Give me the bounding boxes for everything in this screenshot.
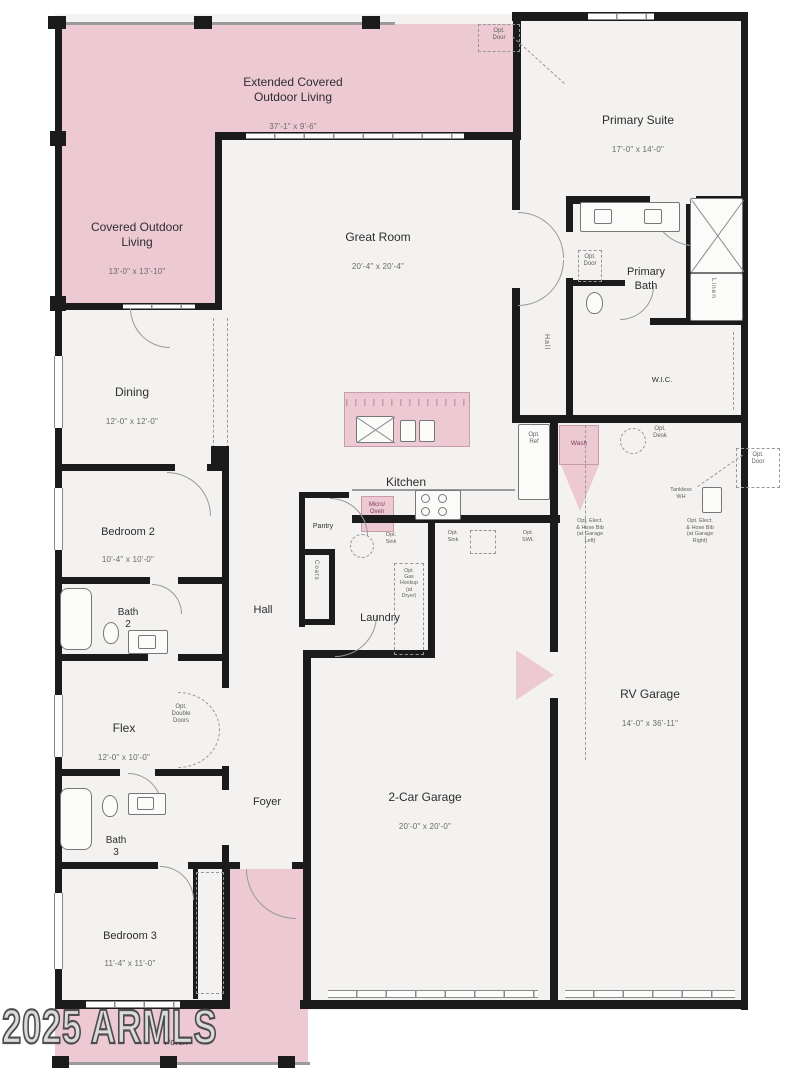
bedroom3-closet	[196, 872, 224, 994]
room-label-foyer: Foyer	[253, 782, 281, 823]
wall	[512, 415, 748, 423]
room-name: Extended Covered Outdoor Living	[243, 75, 342, 105]
room-dims: 10'-4" x 10'-0"	[101, 555, 155, 565]
room-name: Bedroom 2	[101, 526, 155, 540]
flex-doors-opening	[222, 688, 229, 766]
opt-swl-label: Opt. SWL	[522, 530, 534, 543]
wall	[550, 415, 558, 652]
wall	[303, 650, 311, 1008]
opt-door-label: Opt. Door	[583, 254, 596, 268]
toilet	[586, 292, 603, 314]
tankless-water-heater	[702, 487, 722, 513]
bedroom3-side-window	[54, 893, 63, 969]
hose-bib-left-label: Opt. Elect. & Hose Bib (at Garage Left)	[576, 518, 604, 544]
room-name: W.I.C.	[652, 375, 672, 384]
post	[52, 1056, 69, 1068]
room-label-primary-bath: Primary Bath	[627, 252, 665, 307]
opt-ref-label: Opt. Ref	[528, 432, 539, 446]
room-label-dining: Dining 12'-0" x 12'-0"	[106, 370, 158, 442]
room-label-laundry: Laundry	[360, 598, 400, 639]
room-label-covered-outdoor: Covered Outdoor Living 13'-0" x 13'-10"	[91, 205, 183, 292]
bathtub	[60, 788, 92, 850]
room-dims: 14'-0" x 36'-11"	[620, 719, 680, 729]
burner	[438, 507, 447, 516]
front-door-opening	[240, 862, 292, 869]
room-label-hall-suite: Hall	[543, 334, 550, 350]
room-name: Pantry	[313, 523, 333, 532]
room-label-great-room: Great Room 20'-4" x 20'-4"	[345, 215, 410, 287]
bathtub	[60, 588, 92, 650]
bedroom2-window	[54, 488, 63, 550]
room-label-primary-suite: Primary Suite 17'-0" x 14'-0"	[602, 98, 674, 170]
rv-clearance-line	[585, 425, 586, 760]
opt-sink-kitchen-label: Opt. Sink	[386, 532, 397, 545]
opt-gas-dryer-label: Opt. Gas Hookup (at Dryer)	[400, 568, 418, 599]
garage-door-2car	[328, 990, 538, 998]
wall	[299, 492, 349, 498]
room-label-bath3: Bath 3	[106, 822, 127, 872]
room-dims: 12'-0" x 12'-0"	[106, 417, 158, 427]
sink	[594, 209, 612, 224]
island-counter-ticks	[346, 399, 468, 406]
opt-double-doors-label: Opt. Double Doors	[171, 704, 190, 726]
garage-door-rv	[565, 990, 735, 998]
room-label-bath2: Bath 2	[118, 594, 139, 644]
flex-window	[54, 695, 63, 757]
room-name: RV Garage	[620, 687, 680, 702]
wall	[741, 12, 748, 1010]
dishwasher	[419, 420, 435, 442]
floor-plan: Extended Covered Outdoor Living 37'-1" x…	[0, 0, 800, 1082]
room-name: 2-Car Garage	[388, 790, 461, 805]
room-name: Flex	[98, 721, 150, 736]
burner	[438, 494, 447, 503]
opt-wall-line	[227, 318, 228, 448]
room-label-linen: Linen	[710, 278, 717, 299]
room-label-pantry: Pantry	[313, 514, 333, 540]
wall	[300, 1000, 748, 1009]
opt-desk-circle	[620, 428, 646, 454]
wall	[566, 196, 573, 423]
micro-oven-label: Micro/ Oven	[369, 502, 385, 516]
room-dims: 20'-0" x 20'-0"	[388, 822, 461, 832]
wall	[215, 132, 222, 310]
tankless-wh-label: Tankless WH	[670, 487, 691, 500]
room-dims: 12'-0" x 10'-0"	[98, 753, 150, 763]
room-name: Bath 3	[106, 835, 127, 860]
room-dims: 17'-0" x 14'-0"	[602, 145, 674, 155]
sink	[644, 209, 662, 224]
wic-rod-line	[733, 332, 734, 410]
room-label-garage: 2-Car Garage 20'-0" x 20'-0"	[388, 775, 461, 847]
wall	[512, 288, 520, 415]
wall	[211, 446, 229, 464]
post	[50, 131, 66, 146]
post	[362, 16, 380, 29]
room-name: Great Room	[345, 230, 410, 245]
dishwasher	[400, 420, 416, 442]
room-name: Kitchen	[386, 475, 426, 490]
room-name: Covered Outdoor Living	[91, 220, 183, 250]
room-label-coats: Coats	[313, 560, 319, 581]
opt-door-label: Opt. Door	[751, 452, 764, 466]
room-name: Foyer	[253, 796, 281, 810]
room-label-flex: Flex 12'-0" x 10'-0"	[98, 706, 150, 778]
post	[278, 1056, 295, 1068]
room-label-bedroom2: Bedroom 2 10'-4" x 10'-0"	[101, 512, 155, 579]
room-dims: 11'-4" x 11'-0"	[103, 959, 157, 969]
room-name: Primary Suite	[602, 113, 674, 128]
room-label-wic: W.I.C.	[652, 366, 672, 394]
room-name: Laundry	[360, 612, 400, 626]
sink	[138, 635, 156, 649]
wall	[329, 549, 335, 625]
room-name: Dining	[106, 385, 158, 400]
room-label-hall: Hall	[254, 590, 273, 631]
opt-door-label: Opt. Door	[492, 28, 505, 42]
opt-wall-line	[213, 318, 214, 448]
wall	[428, 515, 435, 658]
burner	[421, 507, 430, 516]
wall	[512, 132, 520, 210]
opt-sink-garage-label: Opt. Sink	[448, 530, 459, 543]
door-opening	[222, 790, 229, 845]
wall	[550, 698, 558, 1006]
wall	[55, 862, 222, 869]
primary-suite-window	[588, 13, 654, 20]
toilet	[102, 795, 118, 817]
room-label-rv-garage: RV Garage 14'-0" x 36'-11"	[620, 672, 680, 744]
wall	[299, 492, 305, 627]
room-name: Primary Bath	[627, 266, 665, 294]
armls-watermark: 2025 ARMLS	[2, 1000, 217, 1055]
door-opening	[566, 232, 573, 278]
room-label-kitchen: Kitchen	[386, 460, 426, 505]
room-name: Bath 2	[118, 607, 139, 632]
room-name: Bedroom 3	[103, 930, 157, 944]
room-name: Hall	[254, 604, 273, 618]
room-dims: 13'-0" x 13'-10"	[91, 267, 183, 277]
wall	[55, 654, 222, 661]
toilet	[103, 622, 119, 644]
hose-bib-right-label: Opt. Elect. & Hose Bib (at Garage Right)	[686, 518, 714, 544]
room-label-extended-outdoor: Extended Covered Outdoor Living 37'-1" x…	[243, 60, 342, 147]
post	[194, 16, 212, 29]
opt-desk-label: Opt. Desk	[653, 426, 667, 440]
room-dims: 37'-1" x 9'-6"	[243, 122, 342, 132]
room-label-bedroom3: Bedroom 3 11'-4" x 11'-0"	[103, 916, 157, 983]
opt-sink-garage-box	[470, 530, 496, 554]
door-opening	[148, 654, 178, 661]
dining-side-window	[54, 356, 63, 428]
door-opening	[175, 464, 207, 471]
porch-edge	[55, 1062, 310, 1065]
patio-edge	[55, 22, 395, 25]
opt-sink-kitchen-circle	[350, 534, 374, 558]
wash-label: Wash	[571, 440, 587, 448]
room-dims: 20'-4" x 20'-4"	[345, 262, 410, 272]
sink	[137, 797, 154, 810]
